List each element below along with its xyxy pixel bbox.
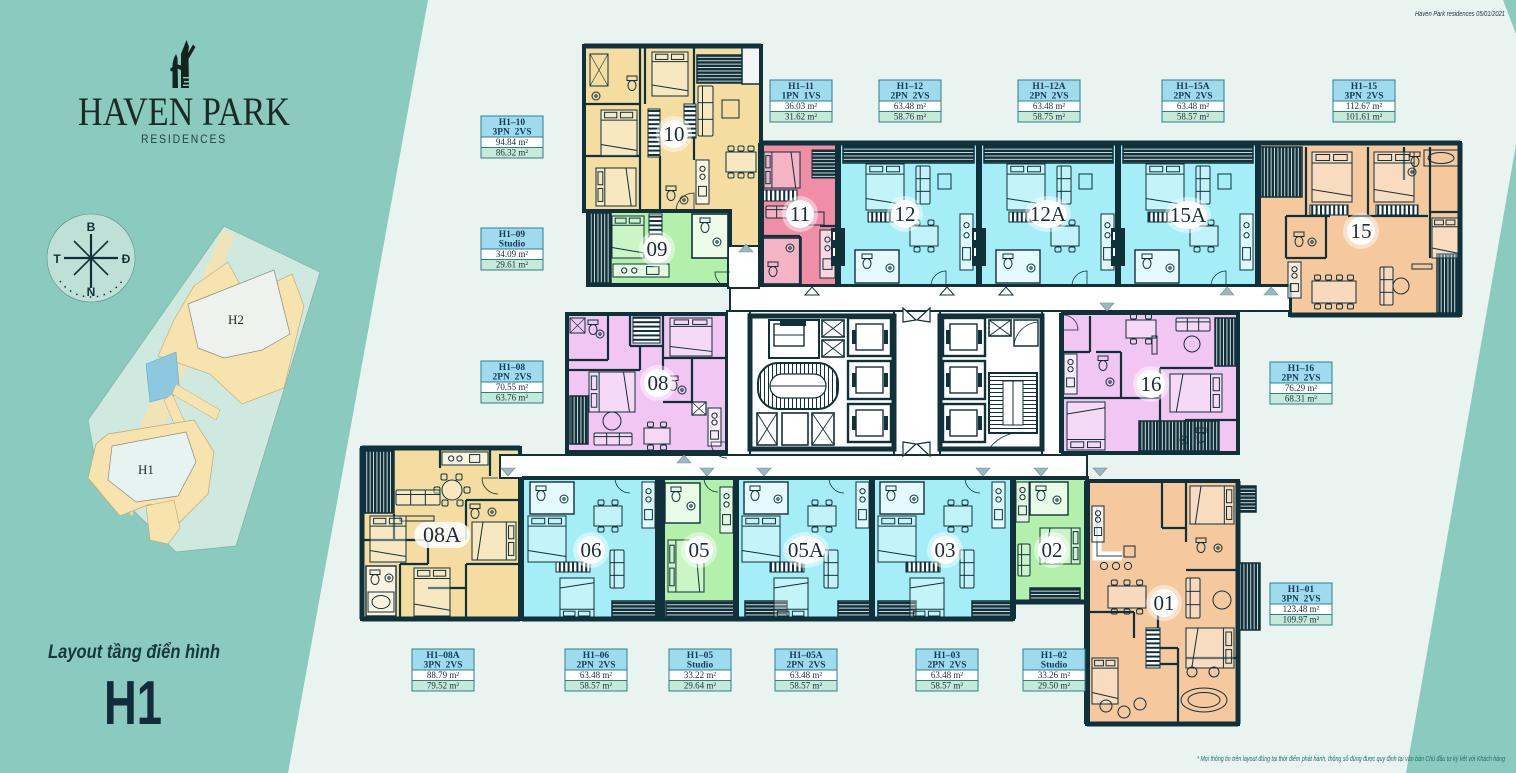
svg-text:Studio: Studio bbox=[499, 240, 526, 250]
svg-text:33.26 m²: 33.26 m² bbox=[1038, 670, 1071, 680]
svg-text:H2: H2 bbox=[228, 312, 244, 327]
svg-text:08: 08 bbox=[648, 371, 669, 395]
svg-text:10: 10 bbox=[664, 122, 685, 146]
svg-text:H1–10: H1–10 bbox=[499, 118, 526, 128]
svg-text:03: 03 bbox=[935, 538, 956, 562]
svg-text:H1: H1 bbox=[138, 462, 154, 477]
svg-text:58.75 m²: 58.75 m² bbox=[1033, 112, 1066, 122]
svg-text:H1–15A: H1–15A bbox=[1176, 82, 1209, 92]
svg-text:B: B bbox=[87, 220, 96, 234]
svg-text:63.48 m²: 63.48 m² bbox=[580, 670, 613, 680]
svg-text:Haven Park residences 05/01/2: Haven Park residences 05/01/2021 bbox=[1415, 9, 1505, 18]
svg-text:05: 05 bbox=[689, 538, 710, 562]
svg-text:33.22 m²: 33.22 m² bbox=[684, 670, 717, 680]
svg-text:H1–05: H1–05 bbox=[687, 651, 714, 661]
svg-text:2PN 2VS: 2PN 2VS bbox=[927, 661, 966, 671]
svg-text:11: 11 bbox=[790, 202, 810, 226]
svg-text:34.09 m²: 34.09 m² bbox=[496, 249, 529, 259]
svg-text:58.57 m²: 58.57 m² bbox=[1177, 112, 1210, 122]
svg-text:2PN 2VS: 2PN 2VS bbox=[1281, 374, 1320, 384]
svg-text:12: 12 bbox=[895, 202, 916, 226]
svg-text:63.48 m²: 63.48 m² bbox=[894, 101, 927, 111]
svg-text:123.48 m²: 123.48 m² bbox=[1283, 604, 1320, 614]
svg-text:H1–16: H1–16 bbox=[1288, 364, 1315, 374]
svg-text:86.32 m²: 86.32 m² bbox=[496, 148, 529, 158]
svg-text:12A: 12A bbox=[1030, 202, 1067, 226]
svg-text:15: 15 bbox=[1351, 219, 1372, 243]
svg-text:H1–12A: H1–12A bbox=[1032, 82, 1065, 92]
svg-text:2PN 2VS: 2PN 2VS bbox=[576, 661, 615, 671]
svg-text:H1–01: H1–01 bbox=[1288, 585, 1315, 595]
svg-text:09: 09 bbox=[647, 237, 668, 261]
svg-text:63.76 m²: 63.76 m² bbox=[496, 393, 529, 403]
svg-text:79.52 m²: 79.52 m² bbox=[427, 681, 460, 691]
svg-text:3PN 2VS: 3PN 2VS bbox=[423, 661, 462, 671]
svg-text:RESIDENCES: RESIDENCES bbox=[141, 134, 227, 146]
svg-text:H1–11: H1–11 bbox=[788, 82, 814, 92]
svg-text:2PN 2VS: 2PN 2VS bbox=[1029, 92, 1068, 102]
svg-text:H1: H1 bbox=[104, 669, 162, 738]
svg-text:63.48 m²: 63.48 m² bbox=[790, 670, 823, 680]
svg-text:29.61 m²: 29.61 m² bbox=[496, 260, 529, 270]
svg-text:2PN 2VS: 2PN 2VS bbox=[786, 661, 825, 671]
svg-text:94.84 m²: 94.84 m² bbox=[496, 137, 529, 147]
svg-text:3PN 2VS: 3PN 2VS bbox=[492, 128, 531, 138]
svg-text:3PN 2VS: 3PN 2VS bbox=[1344, 92, 1383, 102]
svg-text:15A: 15A bbox=[1170, 203, 1207, 227]
svg-text:58.57 m²: 58.57 m² bbox=[580, 681, 613, 691]
svg-text:T: T bbox=[53, 252, 61, 266]
svg-text:76.29 m²: 76.29 m² bbox=[1285, 383, 1318, 393]
svg-text:06: 06 bbox=[581, 538, 602, 562]
svg-text:58.57 m²: 58.57 m² bbox=[931, 681, 964, 691]
svg-text:01: 01 bbox=[1154, 591, 1175, 615]
svg-text:58.57 m²: 58.57 m² bbox=[790, 681, 823, 691]
svg-text:36.03 m²: 36.03 m² bbox=[785, 101, 818, 111]
svg-text:N: N bbox=[87, 285, 96, 299]
svg-text:70.55 m²: 70.55 m² bbox=[496, 382, 529, 392]
svg-text:112.67 m²: 112.67 m² bbox=[1346, 101, 1383, 111]
svg-text:Đ: Đ bbox=[122, 252, 131, 266]
svg-text:2PN 2VS: 2PN 2VS bbox=[890, 92, 929, 102]
svg-text:31.62 m²: 31.62 m² bbox=[785, 112, 818, 122]
svg-text:2PN 2VS: 2PN 2VS bbox=[492, 373, 531, 383]
svg-text:29.64 m²: 29.64 m² bbox=[684, 681, 717, 691]
svg-text:* Mọi thông tin trên layout đú: * Mọi thông tin trên layout đúng tại thờ… bbox=[1197, 754, 1506, 763]
svg-text:63.48 m²: 63.48 m² bbox=[931, 670, 964, 680]
svg-text:63.48 m²: 63.48 m² bbox=[1033, 101, 1066, 111]
svg-text:H1–03: H1–03 bbox=[934, 651, 961, 661]
svg-text:H1–12: H1–12 bbox=[897, 82, 924, 92]
svg-text:68.31 m²: 68.31 m² bbox=[1285, 394, 1318, 404]
svg-text:H1–06: H1–06 bbox=[583, 651, 610, 661]
svg-text:HAVEN PARK: HAVEN PARK bbox=[78, 89, 290, 134]
svg-text:88.79 m²: 88.79 m² bbox=[427, 670, 460, 680]
svg-text:02: 02 bbox=[1042, 538, 1063, 562]
svg-text:H1–05A: H1–05A bbox=[789, 651, 822, 661]
svg-text:63.48 m²: 63.48 m² bbox=[1177, 101, 1210, 111]
svg-text:H1–09: H1–09 bbox=[499, 230, 526, 240]
svg-text:08A: 08A bbox=[423, 522, 461, 547]
svg-text:109.97 m²: 109.97 m² bbox=[1283, 615, 1320, 625]
svg-text:29.50 m²: 29.50 m² bbox=[1038, 681, 1071, 691]
svg-text:05A: 05A bbox=[788, 538, 825, 562]
svg-text:1PN 1VS: 1PN 1VS bbox=[781, 92, 820, 102]
svg-text:3PN 2VS: 3PN 2VS bbox=[1281, 595, 1320, 605]
svg-text:Studio: Studio bbox=[687, 661, 714, 671]
svg-text:58.76 m²: 58.76 m² bbox=[894, 112, 927, 122]
svg-text:H1–08: H1–08 bbox=[499, 363, 526, 373]
svg-text:2PN 2VS: 2PN 2VS bbox=[1173, 92, 1212, 102]
svg-text:H1–08A: H1–08A bbox=[426, 651, 459, 661]
svg-text:H1–15: H1–15 bbox=[1351, 82, 1378, 92]
svg-text:H1–02: H1–02 bbox=[1041, 651, 1068, 661]
svg-text:Layout tầng điển hình: Layout tầng điển hình bbox=[48, 642, 220, 663]
svg-text:101.61 m²: 101.61 m² bbox=[1346, 112, 1383, 122]
svg-text:16: 16 bbox=[1141, 372, 1162, 396]
svg-text:Studio: Studio bbox=[1041, 661, 1068, 671]
